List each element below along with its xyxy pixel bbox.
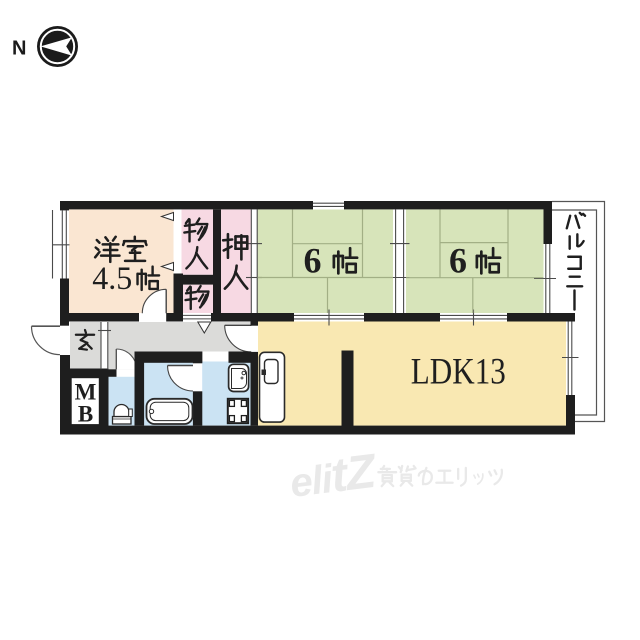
svg-text:6: 6 <box>304 241 322 281</box>
svg-text:6: 6 <box>449 241 467 281</box>
svg-text:LDK13: LDK13 <box>411 352 506 393</box>
svg-text:B: B <box>78 402 93 427</box>
svg-text:N: N <box>12 38 26 60</box>
svg-text:4.5: 4.5 <box>92 261 132 297</box>
